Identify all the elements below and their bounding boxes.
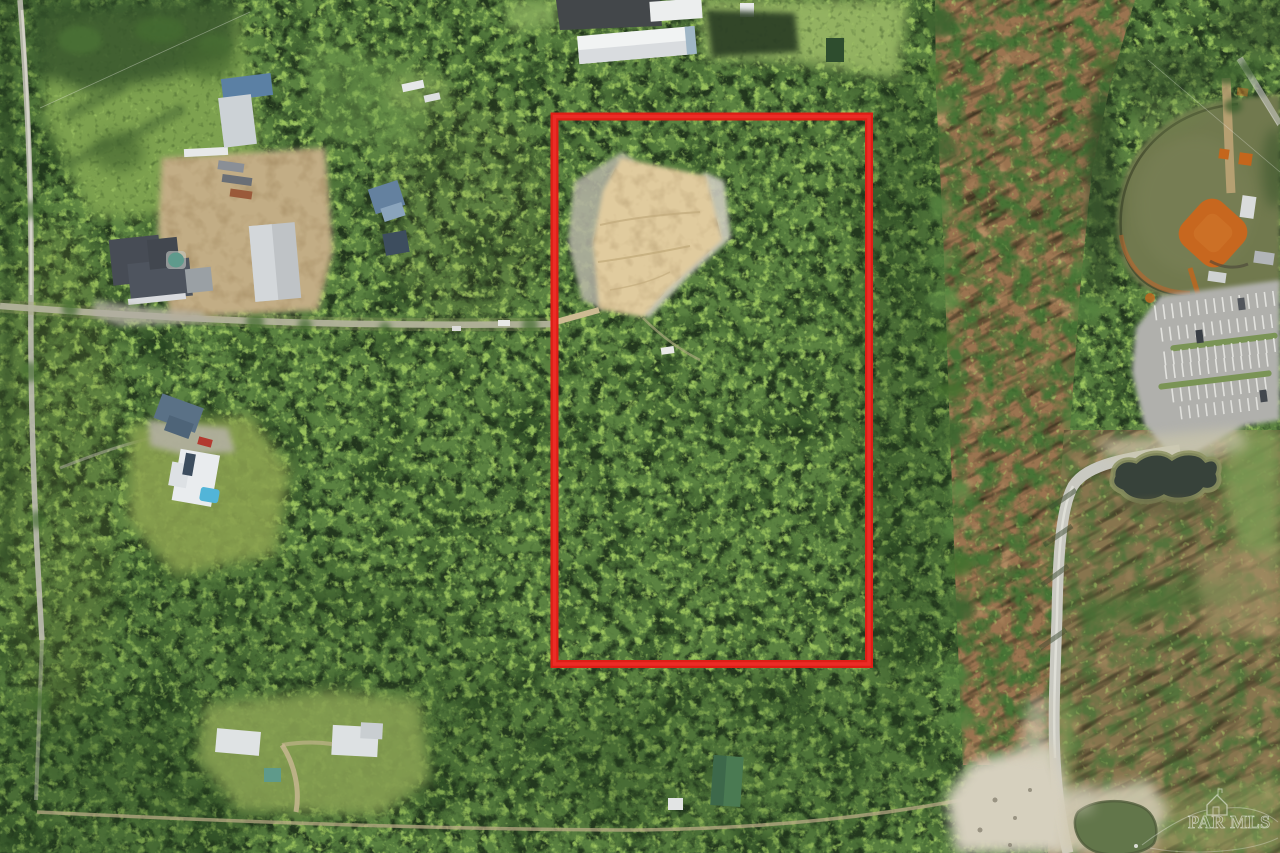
svg-text:PAR MLS: PAR MLS xyxy=(1188,812,1271,832)
